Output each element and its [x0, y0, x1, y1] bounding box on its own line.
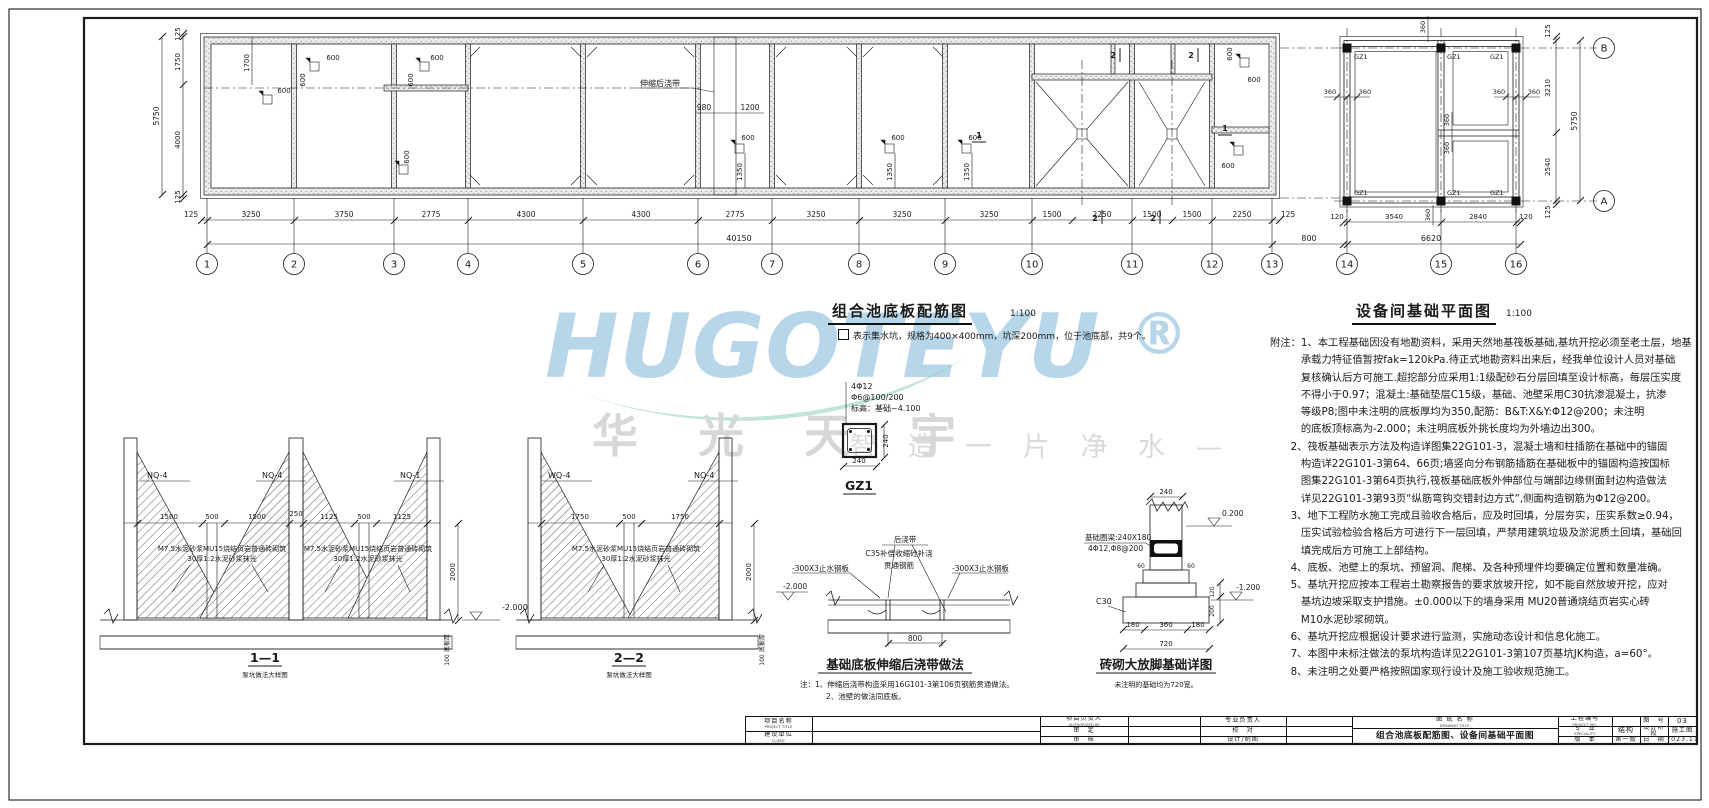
tb-dwg-label: 图 纸 名 称DRAWING TITLE: [1352, 717, 1558, 728]
axis-bubble-label: 13: [1266, 260, 1279, 271]
ring-beam-bars: 4Φ12,Φ8@200: [1088, 544, 1143, 553]
tb-date-label: 日 期: [1640, 736, 1668, 745]
joint-l1: 后浇带: [894, 534, 917, 544]
axis-bubble-label: 15: [1435, 260, 1448, 271]
note-line: M10水泥砂浆砌筑。: [1270, 612, 1694, 629]
axis-bubble-label: 14: [1341, 260, 1354, 271]
note-line: 复核确认后方可施工.超挖部分应采用1:1级配砂石分层回填至设计标高，每层压实度: [1270, 370, 1694, 387]
grid-bubbles-equip: 141516: [1337, 254, 1527, 275]
section-2-2: WQ-4 NQ-4 17505001750 M7.5水泥砂浆MU15烧结页岩普通…: [516, 438, 762, 679]
brick-annotation: M7.5水泥砂浆MU15烧结页岩普通砖砌筑: [572, 544, 700, 553]
main-plan-scale: 1:100: [1010, 309, 1036, 319]
axis-bubble-label: 8: [856, 260, 862, 271]
c30-label: C30: [1096, 597, 1112, 606]
level-mark: -2.000: [783, 582, 807, 591]
dim-text: 1750: [174, 53, 182, 71]
note-line: 3、地下工程防水施工完成且验收合格后，应及时回填，分层夯实，压实系数≥0.94，: [1270, 508, 1694, 525]
dim-600: 600: [299, 73, 307, 86]
level-mark: -2.000: [502, 603, 528, 612]
dim-text: 4300: [516, 210, 535, 219]
tb-proof-label: 校 对: [1200, 726, 1286, 735]
gz1-detail: 4Φ12 Φ6@100/200 标高：基础~4.100 240 240 GZ1: [840, 382, 921, 494]
mark-1: 1: [1222, 124, 1228, 133]
footing-detail: C30 60 60 基础圈梁:240X180 4Φ12,Φ8@200 240 1…: [1084, 488, 1260, 689]
slab-thickness-label: 底板厚: [443, 634, 451, 652]
tb-draw-label: 设计/制图: [1200, 736, 1286, 745]
tb-stage-label: 设计阶段: [1640, 726, 1668, 735]
note-line: 不得小于0.97；混凝土:基础垫层C15级，基础、池壁采用C30抗渗混凝土，抗渗: [1270, 387, 1694, 404]
dim-text: 125: [1281, 210, 1296, 219]
dim-600: 600: [403, 150, 411, 163]
dim-text: 3250: [241, 210, 260, 219]
dim-360: 360: [1419, 21, 1427, 33]
dim-text: 500: [622, 513, 635, 521]
dim-60: 60: [1137, 563, 1145, 570]
dim-200: 200: [1209, 605, 1216, 617]
dim-600: 600: [277, 87, 290, 95]
dim-360: 360: [1424, 209, 1432, 221]
section22-dims: 17505001750: [571, 513, 689, 521]
tb-spec-label: 专 业SPECIALITY: [1558, 726, 1612, 735]
axis-bubble-label: 7: [769, 260, 775, 271]
dim-text: 120: [1519, 213, 1532, 221]
axis-bubble-label: 9: [942, 260, 948, 271]
dim-text: 4000: [174, 131, 182, 149]
tb-ver-value: 第一版: [1612, 736, 1640, 745]
section-1-1: NQ-4 NQ-4 NQ-1 1500500150025011255001125…: [100, 438, 458, 679]
dim-text: 500: [205, 513, 218, 521]
dim-text: 180: [1126, 621, 1139, 629]
equip-plan-title: 设备间基础平面图: [1352, 300, 1496, 325]
equip-plan-scale: 1:100: [1506, 309, 1532, 319]
dim-text: 125: [1544, 205, 1552, 218]
dim-240: 240: [852, 457, 865, 465]
gz1-tag: GZ1: [1490, 53, 1504, 61]
note-line: 的底板顶标高为-2.000；未注明底板外挑长度均为外墙边出300。: [1270, 421, 1694, 438]
dim-600: 600: [891, 134, 904, 142]
waterstop-label: -300X3止水钢板: [792, 563, 849, 573]
footing-title: 砖砌大放脚基础详图: [1100, 657, 1213, 672]
dim-40150: 40150: [726, 234, 751, 243]
axis-bubble-label: 2: [291, 260, 297, 271]
dim-800: 800: [908, 634, 923, 643]
tb-client-label: 建设单位CLIENT: [745, 731, 812, 745]
ring-beam-label: 基础圈梁:240X180: [1085, 532, 1152, 542]
dim-360: 360: [1443, 114, 1451, 126]
dim-text: 125: [174, 190, 182, 203]
section-subcaption: 泵坑做法大样图: [606, 670, 652, 679]
tb-dwg-title: 组合池底板配筋图、设备间基础平面图: [1352, 728, 1558, 745]
note-line: 8、未注明之处要严格按照国家现行设计及施工验收规范施工。: [1270, 664, 1694, 681]
mark-1: 1: [976, 131, 982, 140]
wall-label: NQ-4: [262, 471, 282, 480]
dim-980: 980: [697, 103, 712, 112]
tank-plan: 伸缩后浇带 980 1200: [201, 34, 1280, 225]
dim-text: 3250: [806, 210, 825, 219]
joint-title: 基础底板伸缩后浇带做法: [825, 657, 964, 672]
section-subcaption: 泵坑做法大样图: [242, 670, 288, 679]
legend: 表示集水坑，规格为400×400mm，坑深200mm，位于池底部，共9个。: [838, 329, 1151, 342]
dim-240: 240: [1159, 488, 1172, 496]
dim-text: 250: [289, 510, 302, 518]
note-line: 5、基坑开挖应按本工程岩土勘察报告的要求放坡开挖，如不能自然放坡开挖，应对: [1270, 577, 1694, 594]
dim-text: 360: [1159, 621, 1172, 629]
legend-text: 表示集水坑，规格为400×400mm，坑深200mm，位于池底部，共9个。: [853, 332, 1151, 342]
joint-detail: 后浇带 C35补偿收缩砼补浇 贯通钢筋 -300X3止水钢板 -300X3止水钢…: [776, 534, 1018, 701]
axis-bubble-label: 11: [1126, 260, 1139, 271]
dim-text: 1125: [320, 513, 338, 521]
axis-bubble-label: 16: [1510, 260, 1523, 271]
dim-text: 3750: [334, 210, 353, 219]
gz1-tag: GZ1: [1447, 189, 1461, 197]
dim-1700: 1700: [243, 54, 251, 72]
dim-2000: 2000: [745, 563, 753, 581]
dim-360: 360: [1324, 88, 1336, 96]
section-caption: 1—1: [250, 650, 280, 665]
mark-2: 2: [1110, 51, 1116, 60]
dim-text: 2775: [725, 210, 744, 219]
dim-text: 2250: [1092, 210, 1111, 219]
dim-100: 100: [444, 654, 451, 666]
dim-text: 1500: [248, 513, 266, 521]
dim-360: 360: [1528, 88, 1540, 96]
dim-text: 500: [357, 513, 370, 521]
tb-spec-value: 结构: [1612, 726, 1640, 735]
dim-5750: 5750: [1570, 111, 1579, 130]
drawing-sheet: HUGOTEYU ® 华 光 天 宇 智 造 一 片 净 水 —: [0, 0, 1709, 808]
axis-bubble-label: 1: [204, 260, 210, 271]
level-1200: -1.200: [1236, 583, 1260, 592]
dim-100: 100: [759, 654, 766, 666]
dim-text: 1750: [571, 513, 589, 521]
dim-1200: 1200: [740, 103, 759, 112]
note-line: 附注：1、本工程基础因没有地勘资料，采用天然地基筏板基础,基坑开挖必须至老土层，…: [1270, 335, 1694, 352]
axis-bubble-label: A: [1601, 197, 1608, 208]
tank-dimensions: 1253250375027754300430027753250325032501…: [152, 27, 1533, 253]
level-0200: 0.200: [1222, 509, 1244, 518]
joint-label: 伸缩后浇带: [640, 78, 680, 88]
note-line: 4、底板、池壁上的泵坑、预留洞、爬梯、及各种预埋件均要确定位置和数量准确。: [1270, 560, 1694, 577]
footing-note: 未注明的基础均为720宽。: [1114, 680, 1197, 689]
dim-600: 600: [407, 73, 415, 86]
tank-internal-walls: [292, 44, 1270, 188]
axis-bubble-label: 5: [580, 260, 586, 271]
tb-projno-label: 工程编号PROJECT NO.: [1558, 717, 1612, 726]
dim-text: 1125: [393, 513, 411, 521]
wall-label: NQ-4: [694, 471, 714, 480]
equip-right-dims: 12532102540125: [1544, 24, 1552, 218]
dim-text: 1500: [1042, 210, 1061, 219]
dim-2000: 2000: [449, 563, 457, 581]
tb-check-label: 审 核: [1040, 736, 1128, 745]
dim-text: 1500: [1182, 210, 1201, 219]
tb-figno-value: 03: [1668, 717, 1697, 726]
gz1-elevation: 标高：基础~4.100: [851, 403, 921, 413]
dim-text: 3250: [979, 210, 998, 219]
dim-720: 720: [1159, 640, 1172, 648]
axis-bubble-label: 10: [1026, 260, 1039, 271]
general-notes: 附注：1、本工程基础因没有地勘资料，采用天然地基筏板基础,基坑开挖必须至老土层，…: [1270, 335, 1694, 681]
dim-text: 2775: [421, 210, 440, 219]
joint-l3: 贯通钢筋: [884, 560, 914, 570]
dim-120: 120: [1209, 586, 1216, 598]
tb-project-label: 项目名称PROJECT TITLE: [745, 717, 812, 731]
dim-text: 120: [1330, 213, 1343, 221]
note-line: 2、筏板基础表示方法及构造详图集22G101-3，混凝土墙和柱插筋在基础中的锚固: [1270, 439, 1694, 456]
dim-text: 125: [184, 210, 199, 219]
note-line: 等级P8;图中未注明的底板厚均为350,配筋：B&T:X&Y:Φ12@200；未…: [1270, 404, 1694, 421]
note-line: 7、本图中未标注做法的泵坑构造详见22G101-3第107页基坑JK构造，a=6…: [1270, 646, 1694, 663]
hopper-cells: [1036, 60, 1205, 205]
dim-600: 600: [741, 134, 754, 142]
dim-5750: 5750: [152, 106, 161, 125]
dim-text: 125: [174, 27, 182, 40]
dim-text: 2840: [1469, 213, 1487, 221]
dim-6620: 6620: [1421, 234, 1441, 243]
dim-1350: 1350: [736, 163, 744, 181]
dim-60: 60: [1187, 563, 1195, 570]
left-dim-col: 12517504000125: [174, 27, 182, 203]
joint-note2: 2、池壁的做法同底板。: [826, 691, 906, 701]
note-line: 构造详22G101-3第64、66页;墙竖向分布钢筋插筋在基础板中的锚固构造按国…: [1270, 456, 1694, 473]
title-block: 项目名称PROJECT TITLE 建设单位CLIENT 项目负责人AUTHOR…: [745, 716, 1697, 745]
gz1-title: GZ1: [845, 478, 873, 493]
brick-annotation: 30厚1:2水泥砂浆抹光: [187, 554, 256, 563]
note-line: 压实试验检验合格后方可进行下一层回填，严禁用建筑垃圾及淤泥质土回填，基础回: [1270, 525, 1694, 542]
gz1-tag: GZ1: [1490, 189, 1504, 197]
tb-lead-label: 专业负责人: [1200, 717, 1286, 726]
dim-800: 800: [1301, 234, 1316, 243]
dim-1350: 1350: [963, 163, 971, 181]
brick-annotation: M7.5水泥砂浆MU15烧结页岩普通砖砌筑: [158, 544, 286, 553]
note-line: 6、基坑开挖应根据设计要求进行监测，实施动态设计和信息化施工。: [1270, 629, 1694, 646]
dim-text: 1750: [671, 513, 689, 521]
joint-l2: C35补偿收缩砼补浇: [865, 548, 933, 558]
note-line: 填完成后方可施工上部结构。: [1270, 543, 1694, 560]
sump-legend-icon: [838, 329, 849, 340]
gz1-ties: Φ6@100/200: [851, 393, 904, 402]
wall-label: NQ-1: [400, 471, 420, 480]
dim-600: 600: [326, 54, 339, 62]
mark-2: 2: [1188, 51, 1194, 60]
dim-text: 1500: [1142, 210, 1161, 219]
dim-600: 600: [1221, 162, 1234, 170]
wall-label: NQ-4: [147, 471, 167, 480]
dim-360: 360: [1493, 88, 1505, 96]
dim-600: 600: [1247, 76, 1260, 84]
gz1-tag: GZ1: [1354, 53, 1368, 61]
note-line: 承载力特征值暂按fak=120kPa.待正式地勘资料出来后，经我单位设计人员对基…: [1270, 352, 1694, 369]
dim-600: 600: [430, 54, 443, 62]
section-caption: 2—2: [614, 650, 644, 665]
dim-360: 360: [1359, 88, 1371, 96]
main-plan-title: 组合池底板配筋图: [828, 300, 972, 325]
grid-bubbles-rows: BA: [1594, 38, 1615, 212]
bottom-dim-row: 1253250375027754300430027753250325032501…: [184, 210, 1296, 219]
brick-annotation: 30厚1:2水泥砂浆抹光: [333, 554, 402, 563]
dim-240: 240: [882, 434, 890, 447]
footing-dims: 180360180: [1126, 621, 1204, 629]
note-line: 详见22G101-3第93页“纵筋弯钩交错封边方式”,侧面构造钢筋为Φ12@20…: [1270, 491, 1694, 508]
axis-bubble-label: 6: [695, 260, 701, 271]
note-line: 图集22G101-3第64页执行,筏板基础底板外伸部位与端部边缘侧面封边构造做法: [1270, 473, 1694, 490]
tb-approve-label: 审 定: [1040, 726, 1128, 735]
dim-text: 3250: [892, 210, 911, 219]
axis-bubble-label: 4: [465, 260, 471, 271]
dim-600: 600: [1226, 47, 1234, 60]
slab-thickness-label: 底板厚: [758, 634, 766, 652]
brick-annotation: 30厚1:2水泥砂浆抹光: [601, 554, 670, 563]
dim-text: 1500: [160, 513, 178, 521]
dim-text: 2540: [1544, 158, 1552, 176]
gz1-bars: 4Φ12: [851, 382, 873, 391]
dim-text: 125: [1544, 24, 1552, 37]
wall-label: WQ-4: [548, 471, 570, 480]
dim-text: 180: [1191, 621, 1204, 629]
equip-plan: GZ1 GZ1 GZ1 GZ1 GZ1 GZ1 360 360 360 360 …: [1280, 16, 1597, 225]
tb-figno-label: 图 号: [1640, 717, 1668, 726]
dim-1350: 1350: [886, 163, 894, 181]
tb-date-value: 2023.11: [1668, 736, 1697, 745]
dim-text: 3540: [1385, 213, 1403, 221]
dim-text: 4300: [631, 210, 650, 219]
tb-ver-label: 版 本: [1558, 736, 1612, 745]
gz1-columns: [1343, 44, 1521, 206]
axis-bubble-label: 12: [1206, 260, 1219, 271]
dim-text: 2250: [1232, 210, 1251, 219]
joint-note1: 注：1、伸缩后浇带构造采用16G101-3第106页钢筋贯通做法。: [800, 679, 1014, 689]
axis-bubble-label: 3: [391, 260, 397, 271]
tb-stage-value: 施工图: [1668, 726, 1697, 735]
gz1-tag: GZ1: [1354, 189, 1368, 197]
note-line: 基坑边坡采取支护措施。±0.000以下的墙身采用 MU20普通烧结页岩实心砖: [1270, 594, 1694, 611]
brick-annotation: M7.5水泥砂浆MU15烧结页岩普通砖砌筑: [304, 544, 432, 553]
dim-text: 3210: [1544, 79, 1552, 97]
waterstop-label: -300X3止水钢板: [952, 563, 1009, 573]
dim-360: 360: [1443, 142, 1451, 154]
grid-bubbles-main: 12345678910111213: [197, 254, 1283, 275]
tb-pm-label: 项目负责人AUTHORIZED BY: [1040, 717, 1128, 726]
axis-bubble-label: B: [1601, 44, 1608, 55]
gz1-tag: GZ1: [1447, 53, 1461, 61]
